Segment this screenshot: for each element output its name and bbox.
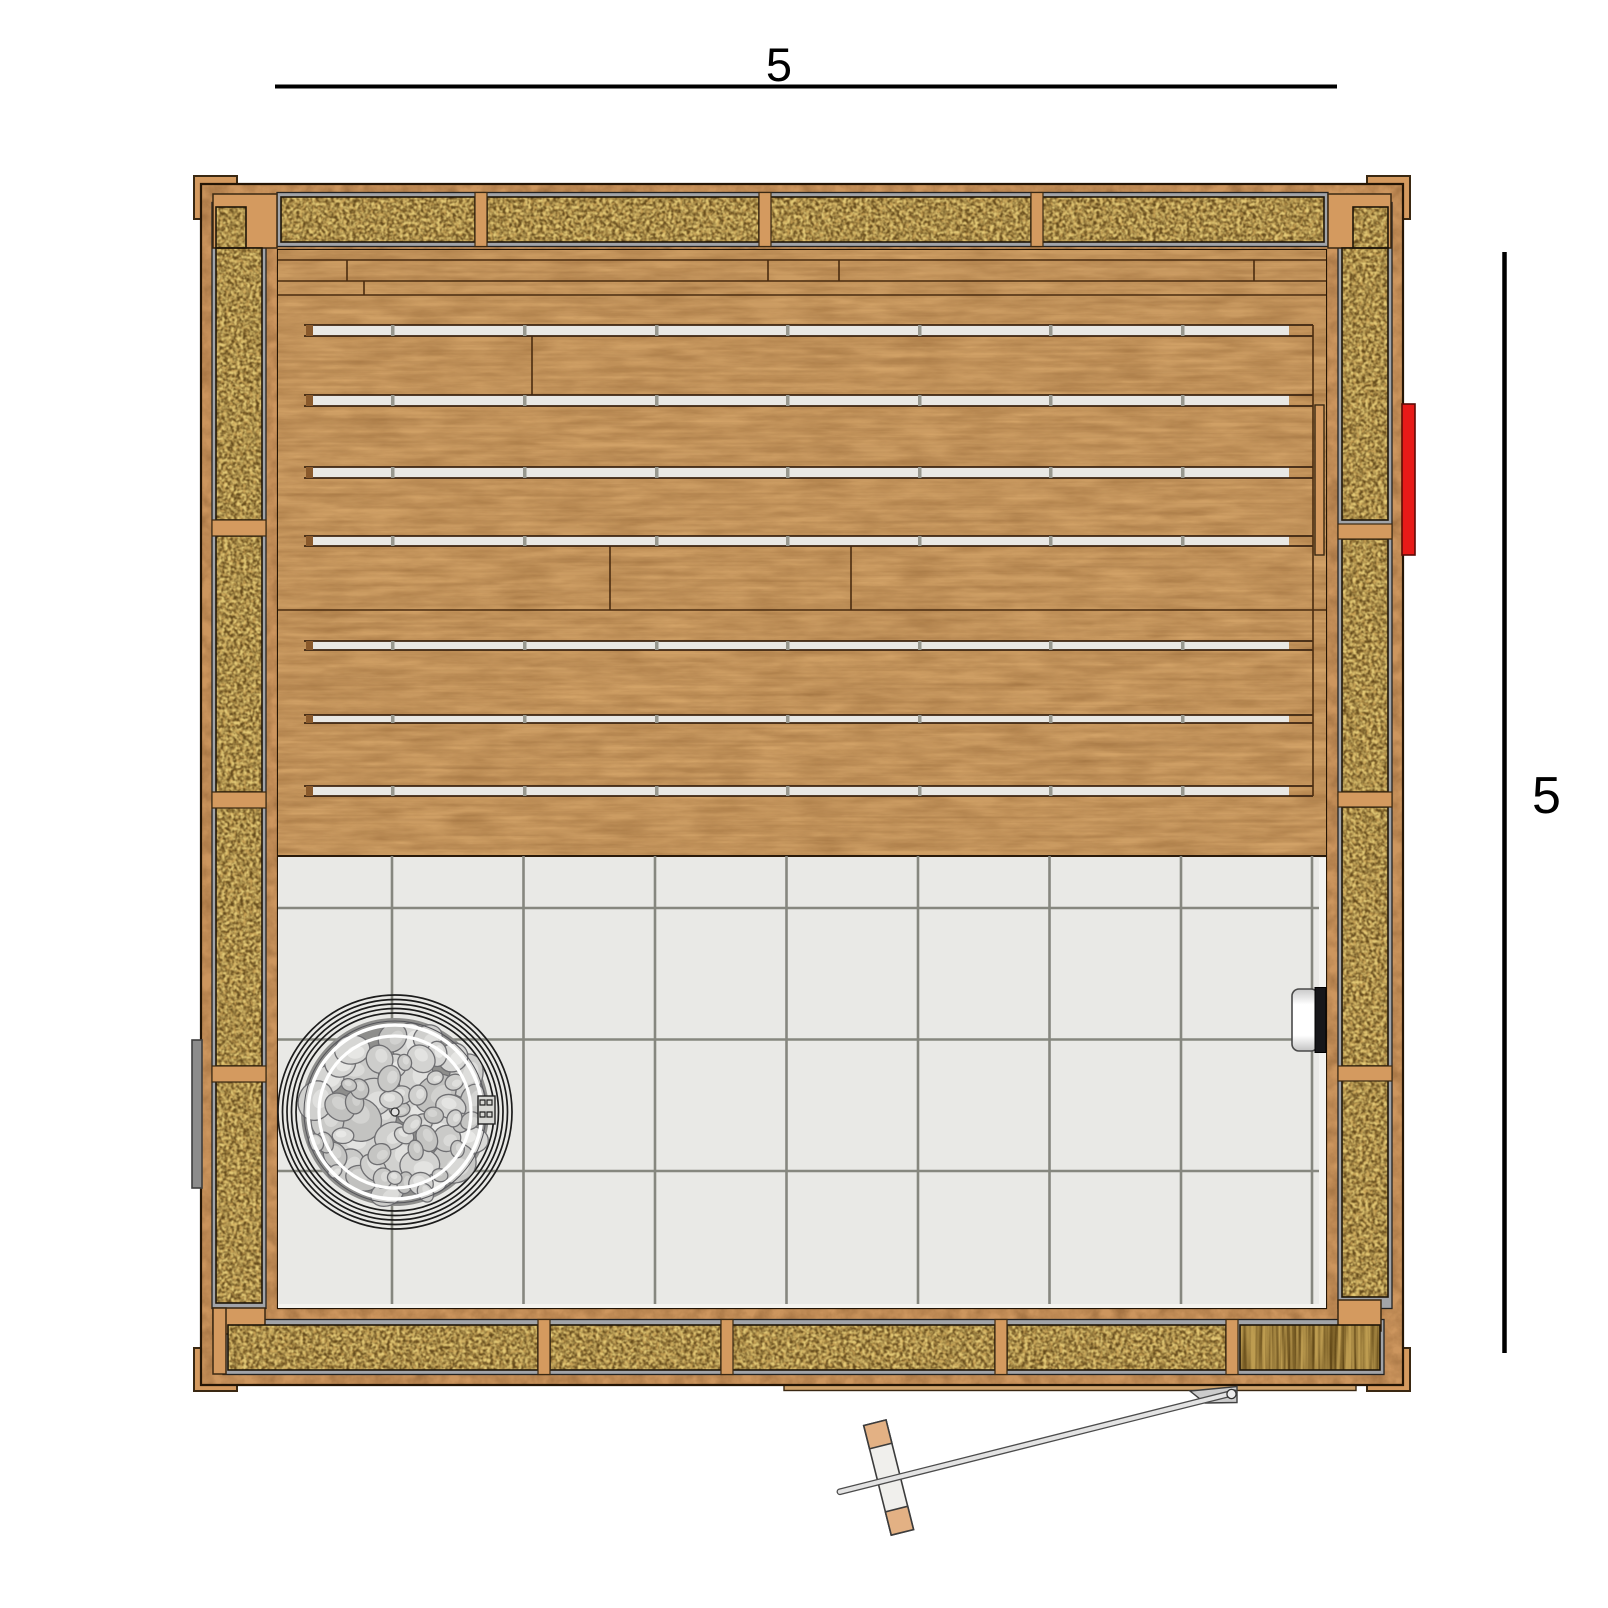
svg-text:5: 5 — [766, 38, 792, 91]
svg-text:5: 5 — [1532, 767, 1561, 825]
